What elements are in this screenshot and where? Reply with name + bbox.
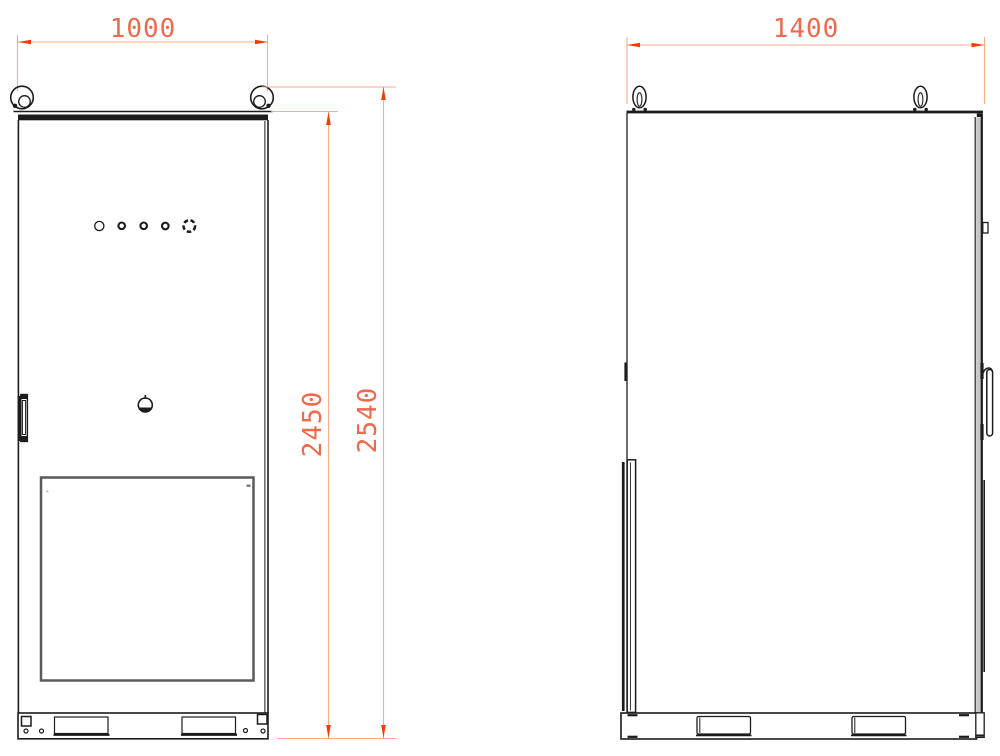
lifting-eye-right bbox=[251, 86, 274, 109]
window-corner-mark bbox=[47, 491, 49, 493]
vent-slot bbox=[55, 717, 109, 734]
dim-overall-height-label: 2540 bbox=[353, 387, 383, 454]
lock-shadow bbox=[139, 408, 152, 413]
indicator-light bbox=[118, 223, 125, 230]
indicator-light bbox=[95, 221, 104, 230]
side-view: 1400 bbox=[621, 14, 993, 739]
eye-ring-inner bbox=[918, 93, 923, 107]
lifting-eye-left bbox=[11, 86, 34, 109]
panel-channel bbox=[627, 460, 635, 713]
viewing-window bbox=[41, 478, 254, 681]
dim-side-depth-label: 1400 bbox=[773, 14, 840, 44]
eye-ring-outer bbox=[633, 86, 646, 108]
door-handle-front bbox=[18, 395, 28, 442]
base-plinth-side bbox=[621, 713, 984, 739]
eye-ring-inner bbox=[637, 93, 642, 107]
cabinet-two-view-drawing: 1000 bbox=[0, 0, 1000, 756]
door-gap-shading bbox=[976, 118, 981, 713]
panel-outer-face bbox=[622, 462, 625, 711]
lifting-eye-side-front bbox=[632, 86, 647, 111]
window-corner-mark bbox=[247, 485, 251, 488]
anchor-plate bbox=[22, 717, 32, 727]
dim-side-depth: 1400 bbox=[627, 14, 985, 104]
vent-slot bbox=[852, 717, 906, 735]
window-frame bbox=[41, 478, 254, 681]
handle-lever bbox=[987, 370, 993, 437]
dim-arrow-down bbox=[381, 725, 386, 738]
indicator-light bbox=[162, 223, 169, 230]
vent-slot bbox=[182, 717, 236, 734]
front-view: 1000 bbox=[11, 14, 396, 739]
eye-ring-inner bbox=[19, 96, 31, 108]
push-button bbox=[184, 220, 196, 232]
dim-arrow-right bbox=[972, 43, 985, 48]
cabinet-top-cap bbox=[14, 112, 273, 121]
front-lower-panel-edge bbox=[622, 460, 636, 713]
handle-grip bbox=[22, 401, 25, 435]
lifting-eye-side-rear bbox=[913, 86, 928, 111]
dim-front-width-label: 1000 bbox=[110, 14, 177, 44]
dim-arrow-up bbox=[381, 87, 386, 100]
drawing-canvas: 1000 bbox=[0, 0, 1000, 756]
eye-weld-mark bbox=[266, 104, 270, 108]
indicator-lights bbox=[95, 220, 195, 232]
dim-arrow-down bbox=[326, 725, 331, 738]
hinge-mark bbox=[624, 363, 627, 382]
vent-slot bbox=[697, 717, 751, 735]
indicator-light bbox=[140, 223, 147, 230]
base-plinth-front bbox=[18, 713, 268, 739]
handle-cap-top bbox=[21, 395, 28, 400]
cabinet-side-outline bbox=[624, 112, 983, 713]
dim-arrow-right bbox=[255, 40, 268, 45]
anchor-plate bbox=[258, 715, 268, 725]
dim-front-heights: 2450 2540 bbox=[262, 87, 396, 739]
handle-mount-bottom bbox=[980, 424, 983, 440]
door-lock bbox=[138, 395, 152, 412]
top-cap-band bbox=[18, 115, 268, 121]
door-clip bbox=[983, 223, 988, 234]
door-top-step bbox=[977, 114, 983, 118]
dim-arrow-left bbox=[627, 43, 640, 48]
eye-ring-outer bbox=[914, 86, 927, 108]
eye-weld-mark bbox=[13, 104, 17, 108]
dim-arrow-up bbox=[326, 112, 331, 125]
dim-body-height-label: 2450 bbox=[298, 391, 328, 458]
dim-arrow-left bbox=[18, 40, 31, 45]
plinth-outline bbox=[621, 713, 977, 739]
eye-ring-inner bbox=[254, 96, 266, 108]
dim-front-width: 1000 bbox=[18, 14, 269, 91]
rear-door-bottom bbox=[976, 713, 984, 738]
handle-cap-bottom bbox=[21, 436, 28, 442]
